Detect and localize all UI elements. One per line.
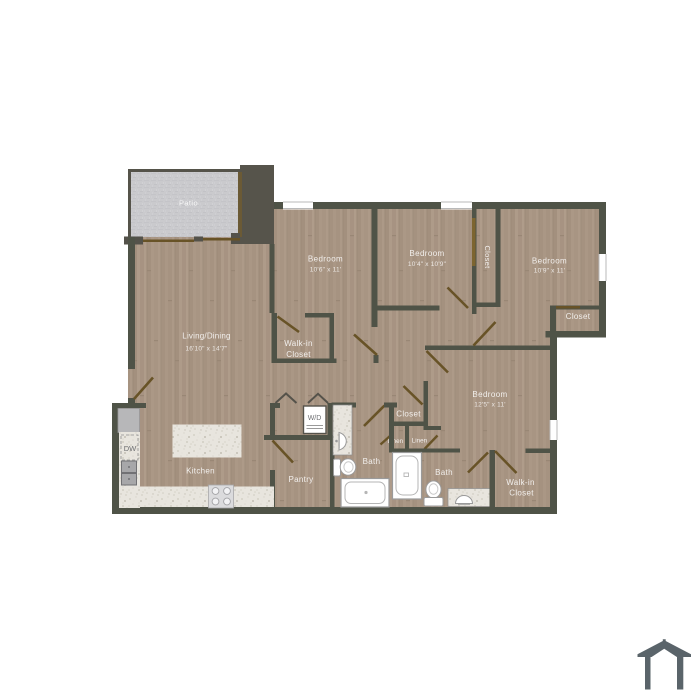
svg-text:Bath: Bath [435,468,453,477]
svg-text:Closet: Closet [509,489,534,498]
svg-text:Bedroom: Bedroom [308,255,343,264]
svg-text:Bedroom: Bedroom [532,257,567,266]
svg-text:Kitchen: Kitchen [186,467,215,476]
svg-text:Closet: Closet [483,245,492,269]
svg-text:Patio: Patio [179,199,198,208]
svg-text:Bath: Bath [363,457,381,466]
svg-text:Closet: Closet [566,312,591,321]
svg-text:Closet: Closet [396,410,421,419]
svg-text:Bedroom: Bedroom [409,249,444,258]
svg-text:12'5" x 11': 12'5" x 11' [474,402,505,409]
svg-text:Closet: Closet [286,350,311,359]
svg-text:Walk-in: Walk-in [284,339,312,348]
svg-text:10'9" x 11': 10'9" x 11' [534,268,565,275]
svg-text:16'10" x 14'7": 16'10" x 14'7" [185,346,228,353]
svg-text:DW: DW [124,444,137,453]
svg-text:Pantry: Pantry [289,475,314,484]
svg-text:Bedroom: Bedroom [472,390,507,399]
svg-text:Living/Dining: Living/Dining [182,332,230,341]
svg-text:10'6" x 11': 10'6" x 11' [310,267,341,274]
svg-text:W/D: W/D [308,415,322,422]
svg-text:Linen: Linen [412,438,428,445]
svg-text:10'4" x 10'9": 10'4" x 10'9" [408,261,447,268]
svg-text:Walk-in: Walk-in [506,478,534,487]
